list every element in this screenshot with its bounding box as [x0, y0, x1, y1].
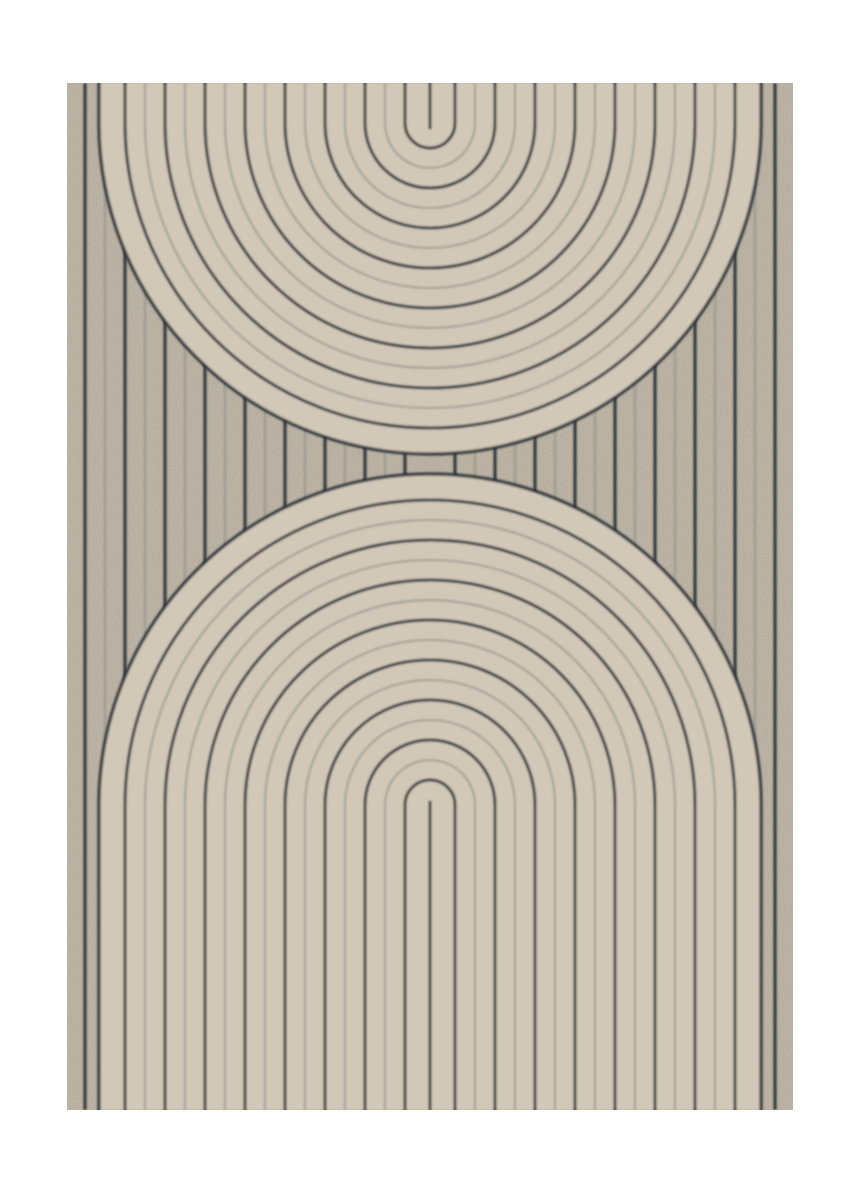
arch-pattern-line-art: [0, 0, 867, 1200]
artwork-poster: [0, 0, 867, 1200]
